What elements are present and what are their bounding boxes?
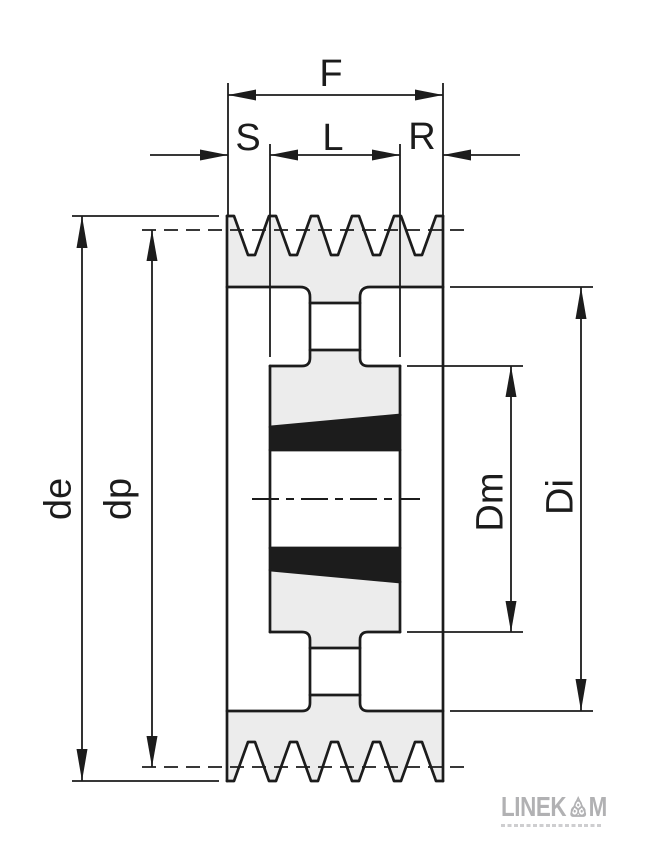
l-arrow-right <box>372 150 400 161</box>
di-arrow-down <box>576 679 587 711</box>
l-arrow-left <box>270 150 298 161</box>
label-S: S <box>235 117 260 159</box>
label-Di: Di <box>539 479 581 515</box>
drawing-canvas: F S L R de dp Dm Di LINEK M <box>0 0 645 843</box>
dm-arrow-up <box>506 366 517 397</box>
de-arrow-down <box>77 749 88 781</box>
linekom-logo: LINEK M <box>501 793 607 827</box>
recess-outline-bottom-left <box>227 632 310 711</box>
label-Dm: Dm <box>469 472 511 531</box>
logo-text-left: LINEK <box>501 793 566 821</box>
rim-top-section-fill <box>227 216 443 303</box>
label-R: R <box>408 116 435 158</box>
recess-outline-bottom-right <box>360 632 443 711</box>
linekom-wordmark: LINEK M <box>501 793 607 821</box>
label-dp: dp <box>97 478 139 520</box>
dp-arrow-up <box>147 230 158 261</box>
pulley-cross-section-drawing: F S L R de dp Dm Di <box>0 0 645 843</box>
bush-bottom-section-fill <box>270 570 400 648</box>
f-arrow-left <box>228 90 256 101</box>
logo-tagline <box>501 824 603 827</box>
rim-bottom-section-fill <box>227 695 443 781</box>
de-arrow-up <box>77 216 88 248</box>
s-outside-arrow <box>200 150 228 161</box>
dimension-de <box>72 216 219 781</box>
recess-outline-top-right <box>360 287 443 366</box>
dimension-SLR <box>150 144 520 357</box>
label-de: de <box>37 478 79 520</box>
dp-arrow-down <box>147 736 158 767</box>
f-arrow-right <box>415 90 443 101</box>
di-arrow-up <box>576 287 587 319</box>
logo-text-right: M <box>589 793 607 821</box>
dm-arrow-down <box>506 601 517 632</box>
recess-outline-top-left <box>227 287 310 366</box>
label-L: L <box>322 117 343 159</box>
label-F: F <box>319 53 342 95</box>
r-outside-arrow <box>443 150 471 161</box>
bearing-rollers-icon <box>568 795 588 820</box>
